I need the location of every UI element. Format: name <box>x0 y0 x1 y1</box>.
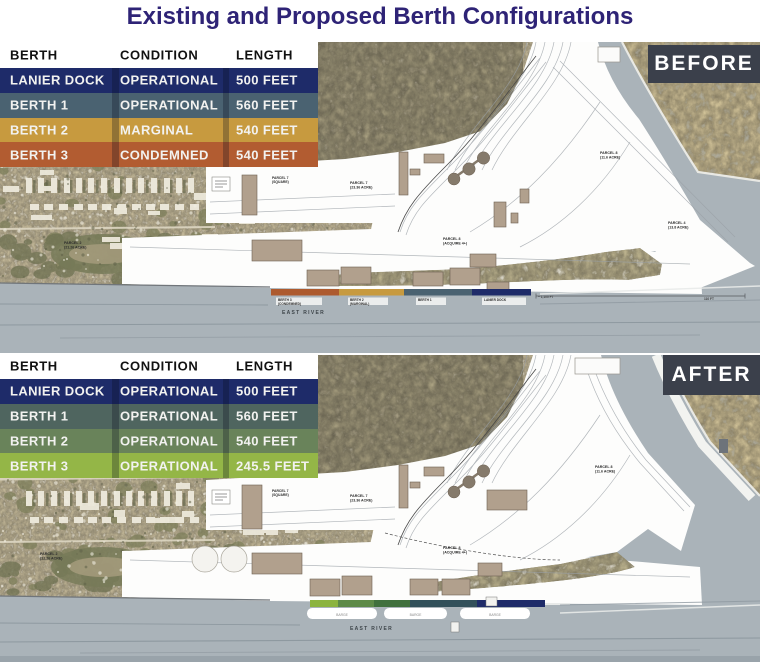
svg-text:(13.8 ACRE): (13.8 ACRE) <box>668 225 689 229</box>
svg-text:(21.26 ACRE): (21.26 ACRE) <box>64 245 87 249</box>
svg-text:PARCEL 8: PARCEL 8 <box>600 151 617 155</box>
svg-text:~ 1,100 FT: ~ 1,100 FT <box>538 295 554 299</box>
svg-text:PARCEL 4: PARCEL 4 <box>668 221 685 225</box>
svg-text:110 FT: 110 FT <box>704 297 714 301</box>
svg-text:BARGE: BARGE <box>489 613 502 617</box>
svg-text:(SQUARE): (SQUARE) <box>272 180 289 184</box>
svg-text:EAST RIVER: EAST RIVER <box>350 626 393 632</box>
svg-text:PARCEL 2: PARCEL 2 <box>40 552 57 556</box>
svg-text:PARCEL 7: PARCEL 7 <box>350 494 367 498</box>
svg-text:PARCEL 8: PARCEL 8 <box>595 465 612 469</box>
svg-text:BARGE: BARGE <box>410 613 423 617</box>
svg-text:PARCEL 2: PARCEL 2 <box>64 241 81 245</box>
svg-text:(11.6 ACRE): (11.6 ACRE) <box>600 155 621 159</box>
svg-text:EAST RIVER: EAST RIVER <box>282 310 325 316</box>
svg-text:(ACQUIRE 4+): (ACQUIRE 4+) <box>443 241 468 245</box>
svg-text:(SQUARE): (SQUARE) <box>272 493 289 497</box>
svg-text:BERTH 1: BERTH 1 <box>418 298 432 302</box>
svg-text:PARCEL 7: PARCEL 7 <box>350 181 367 185</box>
svg-text:BARGE: BARGE <box>336 613 349 617</box>
svg-text:(23.36 ACRE): (23.36 ACRE) <box>350 498 373 502</box>
svg-text:(11.6 ACRE): (11.6 ACRE) <box>595 469 616 473</box>
svg-text:(21.26 ACRE): (21.26 ACRE) <box>40 556 63 560</box>
svg-text:(23.36 ACRE): (23.36 ACRE) <box>350 185 373 189</box>
svg-text:(CONDEMNED): (CONDEMNED) <box>278 302 301 306</box>
svg-text:(ACQUIRE 4+): (ACQUIRE 4+) <box>443 550 468 554</box>
svg-text:LANIER DOCK: LANIER DOCK <box>484 298 507 302</box>
svg-text:(MARGINAL): (MARGINAL) <box>350 302 369 306</box>
svg-text:PARCEL 8: PARCEL 8 <box>443 237 460 241</box>
